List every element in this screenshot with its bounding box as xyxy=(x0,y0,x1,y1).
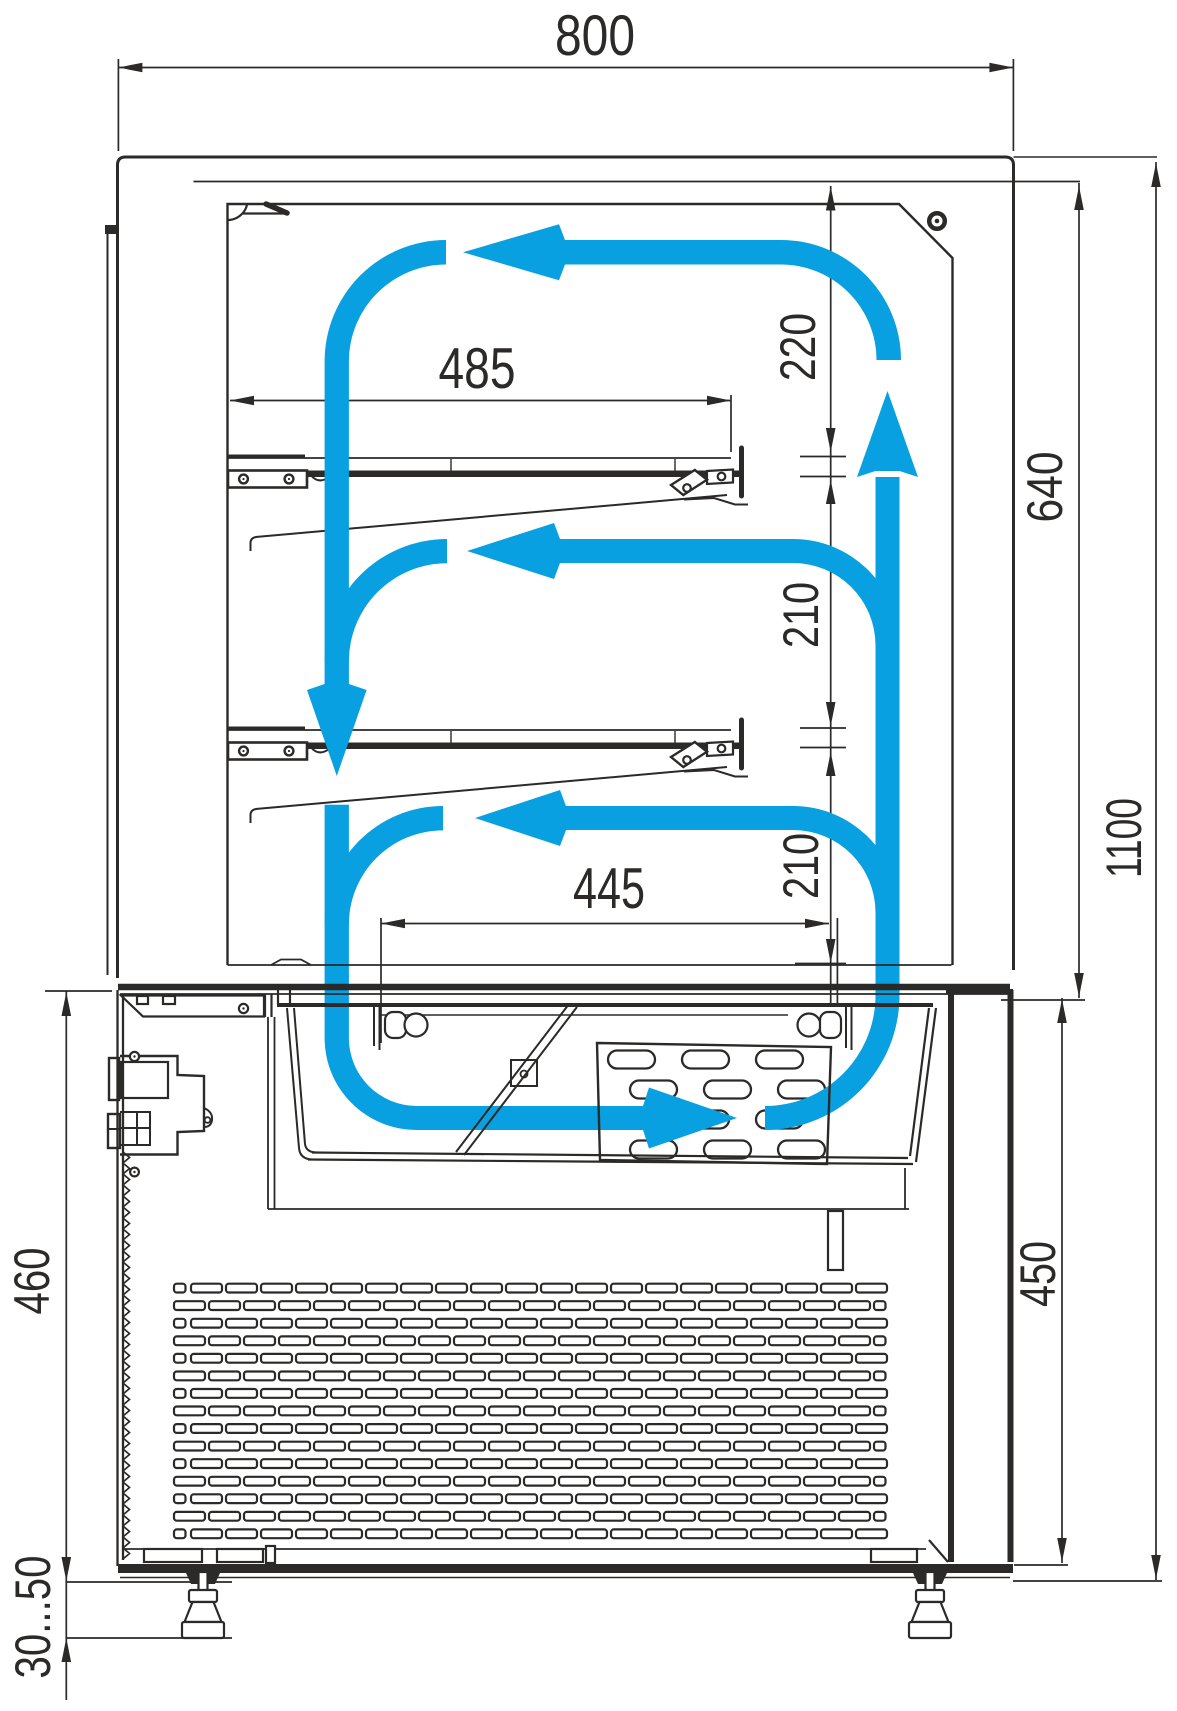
svg-text:640: 640 xyxy=(1017,452,1073,523)
svg-text:30...50: 30...50 xyxy=(5,1556,61,1679)
svg-text:1100: 1100 xyxy=(1096,798,1152,878)
svg-text:220: 220 xyxy=(770,313,826,381)
svg-text:800: 800 xyxy=(555,4,635,68)
svg-text:210: 210 xyxy=(773,582,829,648)
svg-text:485: 485 xyxy=(439,337,516,401)
svg-text:445: 445 xyxy=(573,857,645,921)
svg-text:210: 210 xyxy=(773,833,829,899)
svg-text:450: 450 xyxy=(1010,1241,1066,1307)
svg-text:460: 460 xyxy=(4,1248,60,1315)
